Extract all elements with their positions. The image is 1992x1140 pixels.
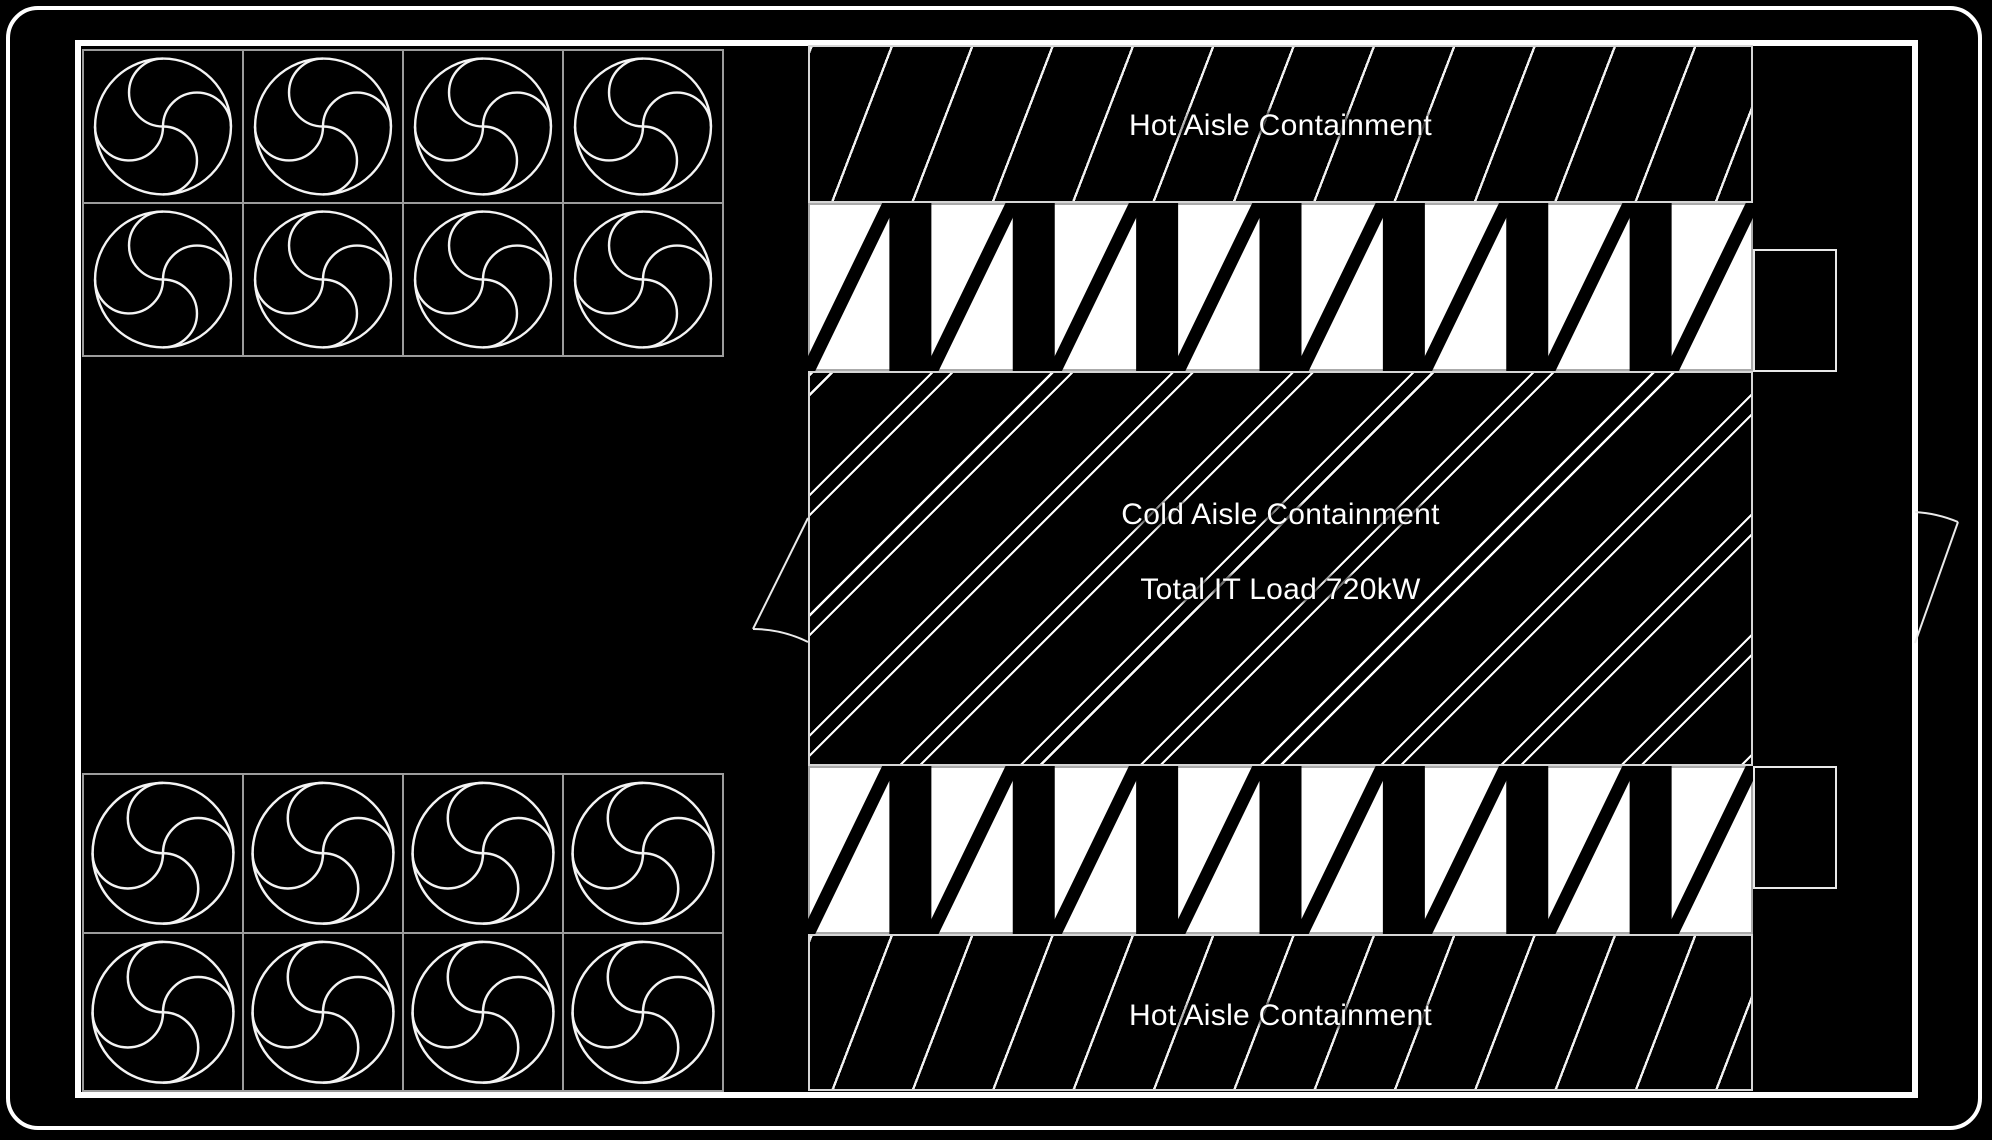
fan-icon xyxy=(244,775,402,932)
fan-cell xyxy=(243,203,403,356)
fan-cell xyxy=(563,203,723,356)
hot-aisle-top-label: Hot Aisle Containment xyxy=(810,109,1751,143)
fan-cell xyxy=(83,50,243,203)
total-it-load-label: Total IT Load 720kW xyxy=(810,573,1751,607)
fan-icon xyxy=(84,204,242,355)
data-center-floor-plan: Hot Aisle Containment Cold Aisle Contain… xyxy=(0,0,1992,1140)
rack-separator-bar xyxy=(1630,766,1672,934)
fan-cell xyxy=(83,933,243,1092)
fan-cell xyxy=(563,774,723,933)
rack-row-bottom-graphic xyxy=(808,766,1753,934)
fan-cell xyxy=(83,774,243,933)
fan-cell xyxy=(243,50,403,203)
rack-separator-bar xyxy=(1506,766,1548,934)
fan-icon xyxy=(564,775,722,932)
fan-array-top-left xyxy=(82,49,724,357)
containment-end-panel-top xyxy=(1753,249,1837,372)
rack-separator-bar xyxy=(1630,203,1672,371)
fan-cell xyxy=(563,933,723,1092)
fan-icon xyxy=(84,51,242,202)
fan-cell xyxy=(403,774,563,933)
rack-separator-bar xyxy=(1013,203,1055,371)
rack-separator-bar xyxy=(1136,766,1178,934)
rack-separator-bar xyxy=(1136,203,1178,371)
fan-icon xyxy=(404,204,562,355)
fan-icon xyxy=(244,204,402,355)
fan-icon xyxy=(244,51,402,202)
cold-aisle-containment: Cold Aisle Containment Total IT Load 720… xyxy=(808,371,1753,766)
hot-aisle-containment-bottom: Hot Aisle Containment xyxy=(808,934,1753,1091)
rack-separator-bar xyxy=(1260,766,1302,934)
fan-icon xyxy=(244,934,402,1091)
fan-cell xyxy=(243,774,403,933)
fan-icon xyxy=(404,775,562,932)
rack-separator-bar xyxy=(889,766,931,934)
rack-row-top xyxy=(808,203,1753,371)
fan-array-bottom-left xyxy=(82,773,724,1092)
hot-aisle-containment-top: Hot Aisle Containment xyxy=(808,45,1753,203)
rack-separator-bar xyxy=(1383,766,1425,934)
rack-separator-bar xyxy=(1506,203,1548,371)
cold-aisle-label: Cold Aisle Containment xyxy=(810,498,1751,532)
fan-cell xyxy=(243,933,403,1092)
fan-cell xyxy=(403,50,563,203)
rack-separator-bar xyxy=(1260,203,1302,371)
fan-cell xyxy=(83,203,243,356)
rack-separator-bar xyxy=(889,203,931,371)
fan-icon xyxy=(84,934,242,1091)
rack-row-top-graphic xyxy=(808,203,1753,371)
fan-cell xyxy=(563,50,723,203)
hot-aisle-bottom-label: Hot Aisle Containment xyxy=(810,999,1751,1033)
fan-icon xyxy=(564,51,722,202)
rack-separator-bar xyxy=(1013,766,1055,934)
fan-icon xyxy=(404,934,562,1091)
fan-cell xyxy=(403,933,563,1092)
fan-icon xyxy=(84,775,242,932)
fan-icon xyxy=(564,934,722,1091)
fan-icon xyxy=(564,204,722,355)
rack-separator-bar xyxy=(1383,203,1425,371)
containment-end-panel-bottom xyxy=(1753,766,1837,889)
fan-icon xyxy=(404,51,562,202)
rack-row-bottom xyxy=(808,766,1753,934)
fan-cell xyxy=(403,203,563,356)
